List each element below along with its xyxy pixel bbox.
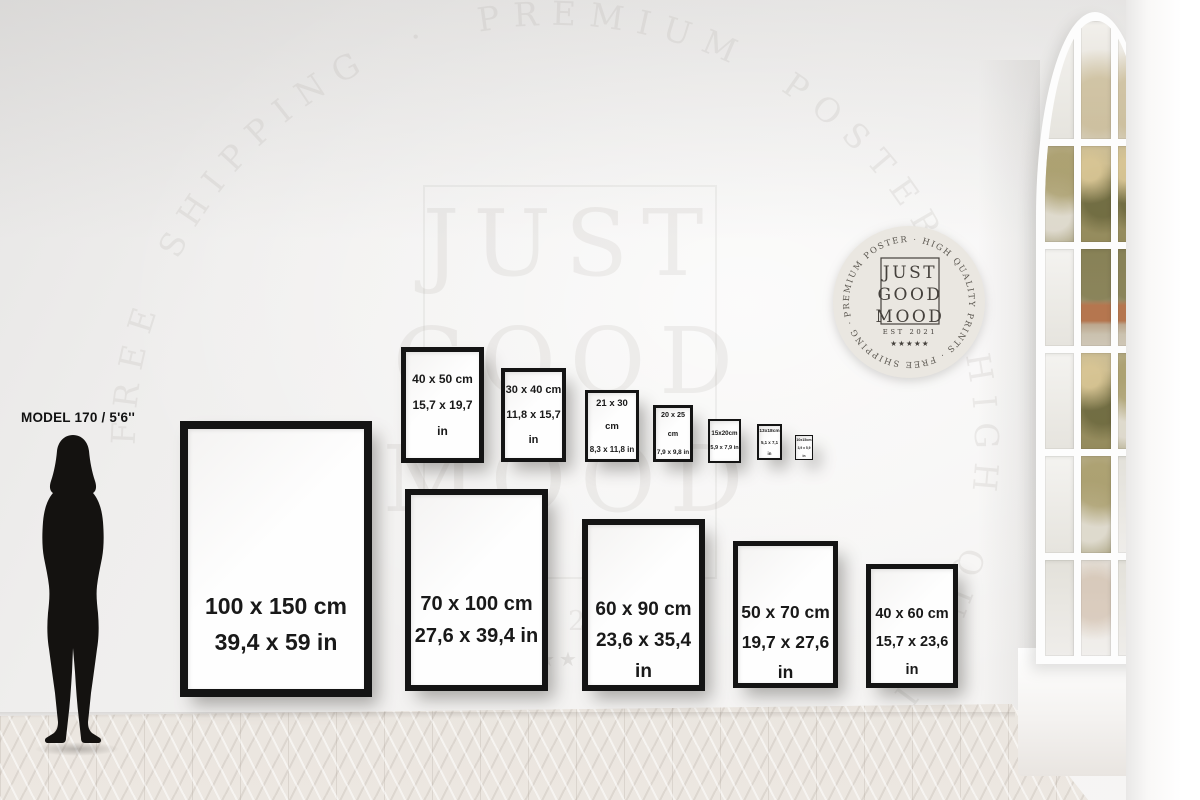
frame-size-cm: 40 x 60 cm	[871, 600, 953, 628]
frame-size-in: 15,7 x 23,6 in	[871, 628, 953, 684]
frame-20x25: 20 x 25 cm 7,9 x 9,8 in	[653, 405, 693, 462]
frame-size-cm: 70 x 100 cm	[411, 588, 542, 620]
frame-size-in: 15,7 x 19,7 in	[406, 392, 479, 444]
window-pane	[1081, 456, 1110, 552]
frame-10x15: 10x15cm 3,9 x 5,9 in	[795, 435, 813, 460]
frame-size-cm: 100 x 150 cm	[188, 588, 364, 624]
frame-size-in: 19,7 x 27,6 in	[738, 627, 833, 687]
frame-size-cm: 40 x 50 cm	[406, 366, 479, 392]
frame-size-cm: 21 x 30 cm	[588, 392, 636, 438]
frame-size-cm: 13x18cm	[759, 426, 780, 437]
frame-size-in: 23,6 x 35,4 in	[588, 625, 699, 687]
frame-size-in: 3,9 x 5,9 in	[796, 444, 812, 460]
frame-size-cm: 10x15cm	[796, 436, 812, 444]
frame-70x100: 70 x 100 cm 27,6 x 39,4 in	[405, 489, 548, 691]
frame-size-in: 27,6 x 39,4 in	[411, 620, 542, 652]
frame-size-cm: 30 x 40 cm	[505, 378, 562, 403]
badge-word-mood: MOOD	[876, 307, 945, 327]
window-pane	[1045, 146, 1074, 242]
wall-floor-junction	[0, 712, 1015, 718]
model-height-label: MODEL 170 / 5'6''	[21, 410, 161, 425]
frame-15x20: 15x20cm 5,9 x 7,9 in	[708, 419, 741, 463]
frame-60x90: 60 x 90 cm 23,6 x 35,4 in	[582, 519, 705, 691]
window-pane	[1081, 560, 1110, 656]
window-pane	[1045, 456, 1074, 552]
frame-size-in: 8,3 x 11,8 in	[588, 438, 636, 461]
badge-est: EST 2021	[883, 328, 937, 336]
window-pane	[1045, 560, 1074, 656]
brand-badge: PREMIUM POSTER · HIGH QUALITY PRINTS · F…	[829, 222, 989, 382]
frame-size-in: 39,4 x 59 in	[188, 624, 364, 660]
window-pane	[1081, 249, 1110, 345]
badge-stars: ★★★★★	[890, 339, 930, 348]
model-silhouette	[25, 432, 120, 754]
frame-size-in: 5,9 x 7,9 in	[710, 441, 738, 455]
frame-13x18: 13x18cm 5,1 x 7,1 in	[757, 424, 782, 460]
frame-50x70: 50 x 70 cm 19,7 x 27,6 in	[733, 541, 838, 688]
badge-word-good: GOOD	[877, 285, 942, 305]
frame-size-cm: 20 x 25 cm	[656, 405, 690, 443]
frame-size-in: 5,1 x 7,1 in	[759, 437, 780, 459]
window-pane	[1045, 249, 1074, 345]
poster-size-guide-scene: FREE SHIPPING · PREMIUM POSTER · HIGH QU…	[0, 0, 1200, 800]
woman-silhouette-shape	[42, 435, 103, 743]
frame-size-cm: 50 x 70 cm	[738, 597, 833, 627]
frame-size-in: 7,9 x 9,8 in	[656, 443, 690, 462]
window-pane	[1045, 353, 1074, 449]
frame-size-cm: 60 x 90 cm	[588, 594, 699, 625]
badge-word-just: JUST	[881, 263, 937, 283]
frame-40x60: 40 x 60 cm 15,7 x 23,6 in	[866, 564, 958, 688]
frame-100x150: 100 x 150 cm 39,4 x 59 in	[180, 421, 372, 697]
window-pane	[1081, 146, 1110, 242]
window-wall-shadow	[978, 60, 1040, 710]
window-sill	[1018, 648, 1136, 776]
frame-21x30: 21 x 30 cm 8,3 x 11,8 in	[585, 390, 639, 462]
frame-30x40: 30 x 40 cm 11,8 x 15,7 in	[501, 368, 566, 462]
frame-size-in: 11,8 x 15,7 in	[505, 403, 562, 453]
wall-corner-pillar	[1126, 0, 1200, 800]
frame-40x50: 40 x 50 cm 15,7 x 19,7 in	[401, 347, 484, 463]
window-pane	[1081, 21, 1110, 139]
frame-size-cm: 15x20cm	[710, 427, 738, 441]
window-pane	[1081, 353, 1110, 449]
